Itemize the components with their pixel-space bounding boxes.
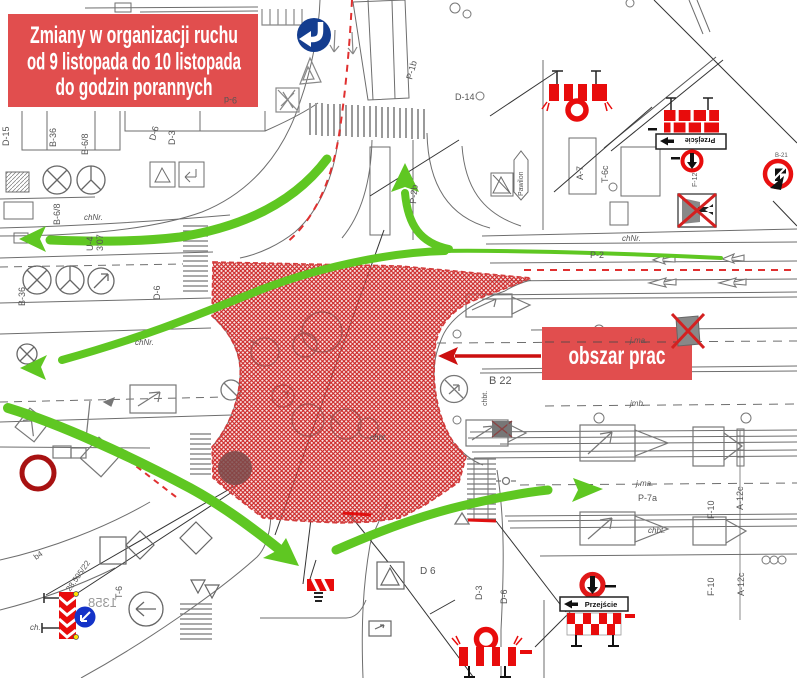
svg-text:D 6: D 6 (420, 566, 436, 577)
svg-text:chNr.: chNr. (622, 234, 641, 243)
svg-text:3'07: 3'07 (95, 234, 105, 251)
svg-text:B 22: B 22 (489, 375, 512, 387)
svg-text:j.ma.: j.ma. (635, 479, 653, 488)
svg-text:chbt.: chbt. (648, 526, 665, 535)
svg-text:ch.: ch. (30, 623, 41, 632)
svg-text:B-6/8: B-6/8 (80, 133, 90, 155)
svg-text:D-15: D-15 (1, 126, 11, 146)
svg-text:B-21: B-21 (775, 153, 788, 159)
svg-text:B-36: B-36 (48, 128, 58, 147)
svg-text:chbt.: chbt. (482, 391, 489, 406)
svg-text:Przejście: Przejście (585, 600, 618, 609)
svg-text:od 9 listopada do 10 listopada: od 9 listopada do 10 listopada (27, 49, 241, 76)
svg-text:obszar prac: obszar prac (569, 342, 666, 370)
svg-text:P-2b: P-2b (408, 184, 420, 204)
svg-text:D-6: D-6 (152, 285, 162, 300)
svg-text:jmb.: jmb. (629, 399, 645, 408)
svg-text:D-14: D-14 (455, 92, 475, 102)
svg-text:do godzin porannych: do godzin porannych (56, 74, 213, 101)
svg-text:B-6/8: B-6/8 (52, 203, 62, 225)
svg-text:1358: 1358 (88, 595, 117, 610)
svg-text:B-36: B-36 (17, 287, 27, 306)
svg-text:A-12c: A-12c (735, 486, 745, 510)
svg-text:9-d: 9-d (224, 95, 237, 105)
svg-text:F-12: F-12 (692, 173, 699, 188)
svg-text:F-10: F-10 (706, 500, 716, 519)
svg-text:Pawilon: Pawilon (518, 171, 525, 196)
svg-text:chNr.: chNr. (84, 213, 103, 222)
svg-text:A-7: A-7 (575, 166, 585, 180)
svg-text:U-4: U-4 (85, 236, 95, 251)
svg-text:chNr.: chNr. (135, 338, 154, 347)
svg-text:Zmiany w organizacji ruchu: Zmiany w organizacji ruchu (30, 22, 238, 49)
svg-text:T-6c: T-6c (600, 165, 610, 183)
svg-text:F-10: F-10 (706, 577, 716, 596)
svg-text:Przejście: Przejście (685, 136, 715, 143)
svg-text:j.ma.: j.ma. (629, 336, 647, 345)
svg-text:P-7a: P-7a (638, 493, 657, 503)
svg-text:chbt.: chbt. (370, 433, 387, 442)
svg-text:P-2: P-2 (590, 250, 604, 260)
svg-text:D-3: D-3 (167, 130, 177, 145)
svg-text:D-6: D-6 (499, 589, 509, 604)
svg-text:A-12c: A-12c (736, 572, 746, 596)
svg-text:D-3: D-3 (474, 585, 484, 600)
